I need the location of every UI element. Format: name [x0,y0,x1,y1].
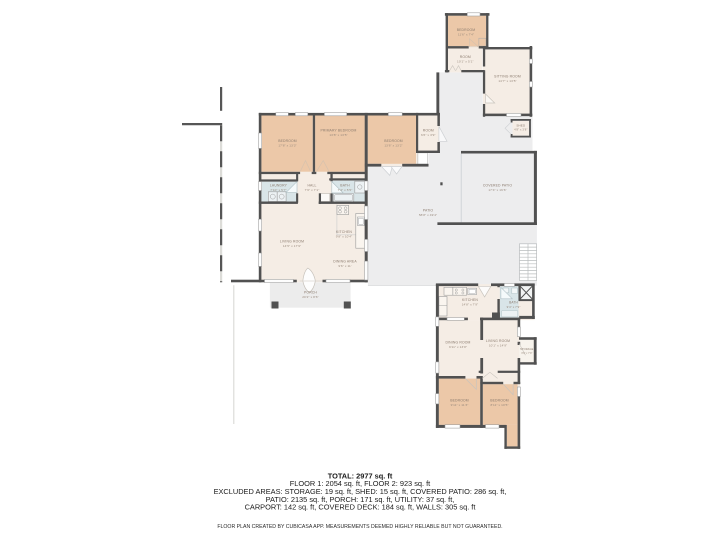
svg-text:LIVING ROOM: LIVING ROOM [280,239,304,243]
svg-text:DINING AREA: DINING AREA [333,260,357,264]
svg-text:SITTING ROOM: SITTING ROOM [494,75,521,79]
svg-text:BEDROOM: BEDROOM [490,399,509,403]
svg-text:BEDROOM: BEDROOM [457,28,476,32]
svg-text:20’2” x 8’6”: 20’2” x 8’6” [302,295,319,299]
svg-text:10’1” x 14’9”: 10’1” x 14’9” [489,344,507,348]
svg-text:7’4” x 5’5”: 7’4” x 5’5” [338,188,353,192]
svg-text:LAUNDRY: LAUNDRY [270,184,288,188]
svg-text:BATH: BATH [340,184,350,188]
svg-text:9’4” x 7’9”: 9’4” x 7’9” [507,305,521,309]
svg-text:9’11” x 13’8”: 9’11” x 13’8” [449,345,467,349]
svg-text:3’6” x 7’9”: 3’6” x 7’9” [521,353,532,355]
svg-text:7’6” x 7’1”: 7’6” x 7’1” [305,188,320,192]
svg-text:6’6” x 3’9”: 6’6” x 3’9” [421,133,436,137]
svg-text:ROOM: ROOM [460,55,471,59]
svg-text:9’6” x 11’: 9’6” x 11’ [338,264,352,268]
svg-text:PORCH: PORCH [304,291,317,295]
svg-text:17’4” x 16’6”: 17’4” x 16’6” [488,188,506,192]
svg-text:9’11” x 11’3”: 9’11” x 11’3” [451,403,469,407]
svg-text:17’8” x 13’3”: 17’8” x 13’3” [278,143,296,147]
svg-text:KITCHEN: KITCHEN [462,298,478,302]
svg-text:ROOM: ROOM [423,129,434,133]
svg-text:PRIMARY BEDROOM: PRIMARY BEDROOM [320,129,356,133]
svg-text:8’11” x 10’5”: 8’11” x 10’5” [490,403,508,407]
svg-text:PATIO: PATIO [423,209,434,213]
svg-text:COVERED PATIO: COVERED PATIO [483,184,513,188]
svg-text:LIVING ROOM: LIVING ROOM [486,339,510,343]
svg-text:11’6” x 7’4”: 11’6” x 7’4” [458,33,474,37]
svg-text:KITCHEN: KITCHEN [336,230,352,234]
svg-text:HALL: HALL [307,184,316,188]
svg-text:FLOOR PLAN CREATED BY CUBICASA: FLOOR PLAN CREATED BY CUBICASA APP. MEAS… [217,524,502,530]
svg-text:14’7” x 13’5”: 14’7” x 13’5” [498,79,516,83]
svg-text:13’6” x 13’2”: 13’6” x 13’2” [384,143,402,147]
svg-text:13’8” x 13’5”: 13’8” x 13’5” [329,133,347,137]
svg-text:14’5” x 17’9”: 14’5” x 17’9” [283,244,301,248]
svg-text:STORAGE: STORAGE [520,348,533,351]
svg-text:BEDROOM: BEDROOM [278,139,297,143]
svg-text:58’8” x 49’4”: 58’8” x 49’4” [419,213,437,217]
svg-text:4’8” x 3’8”: 4’8” x 3’8” [514,128,527,132]
svg-text:9’8” x 10’4”: 9’8” x 10’4” [336,235,353,239]
svg-text:BATH: BATH [509,301,518,305]
svg-text:CARPORT: 142 sq. ft, COVERED D: CARPORT: 142 sq. ft, COVERED DECK: 184 s… [245,503,476,512]
svg-text:7’10” x 5’7”: 7’10” x 5’7” [270,188,287,192]
svg-text:BEDROOM: BEDROOM [384,139,403,143]
svg-text:14’8” x 7’9”: 14’8” x 7’9” [462,303,479,307]
svg-text:10’1” x 5’1”: 10’1” x 5’1” [457,60,474,64]
svg-text:DINING ROOM: DINING ROOM [445,341,470,345]
svg-text:BEDROOM: BEDROOM [450,399,469,403]
